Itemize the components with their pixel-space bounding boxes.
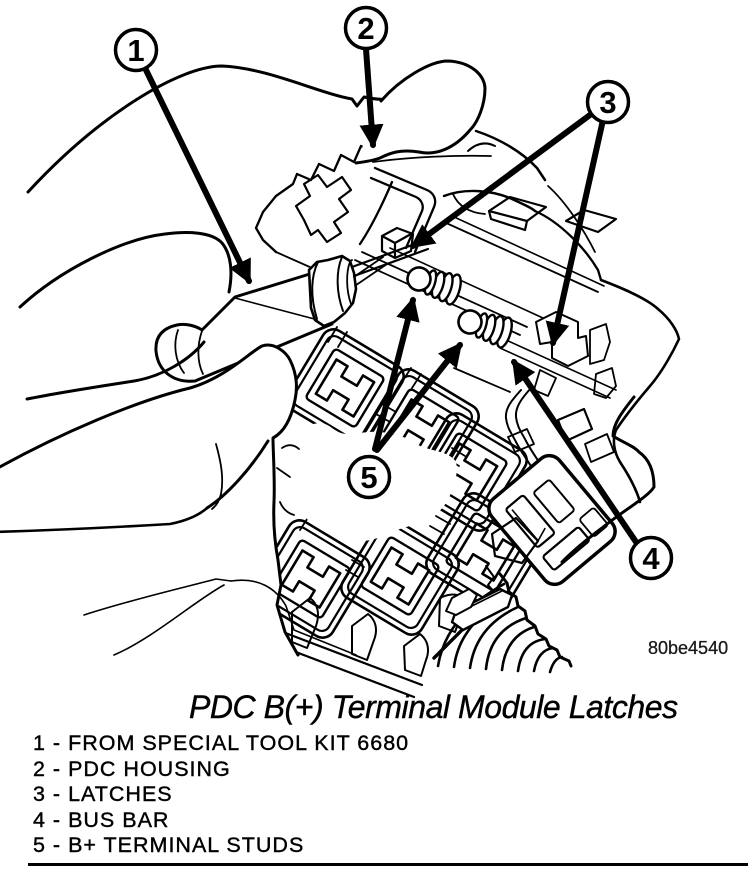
svg-text:2: 2 — [357, 11, 374, 46]
svg-text:3: 3 — [599, 85, 616, 120]
svg-text:1: 1 — [127, 33, 144, 68]
svg-text:4: 4 — [642, 541, 660, 576]
svg-text:5: 5 — [360, 460, 377, 495]
